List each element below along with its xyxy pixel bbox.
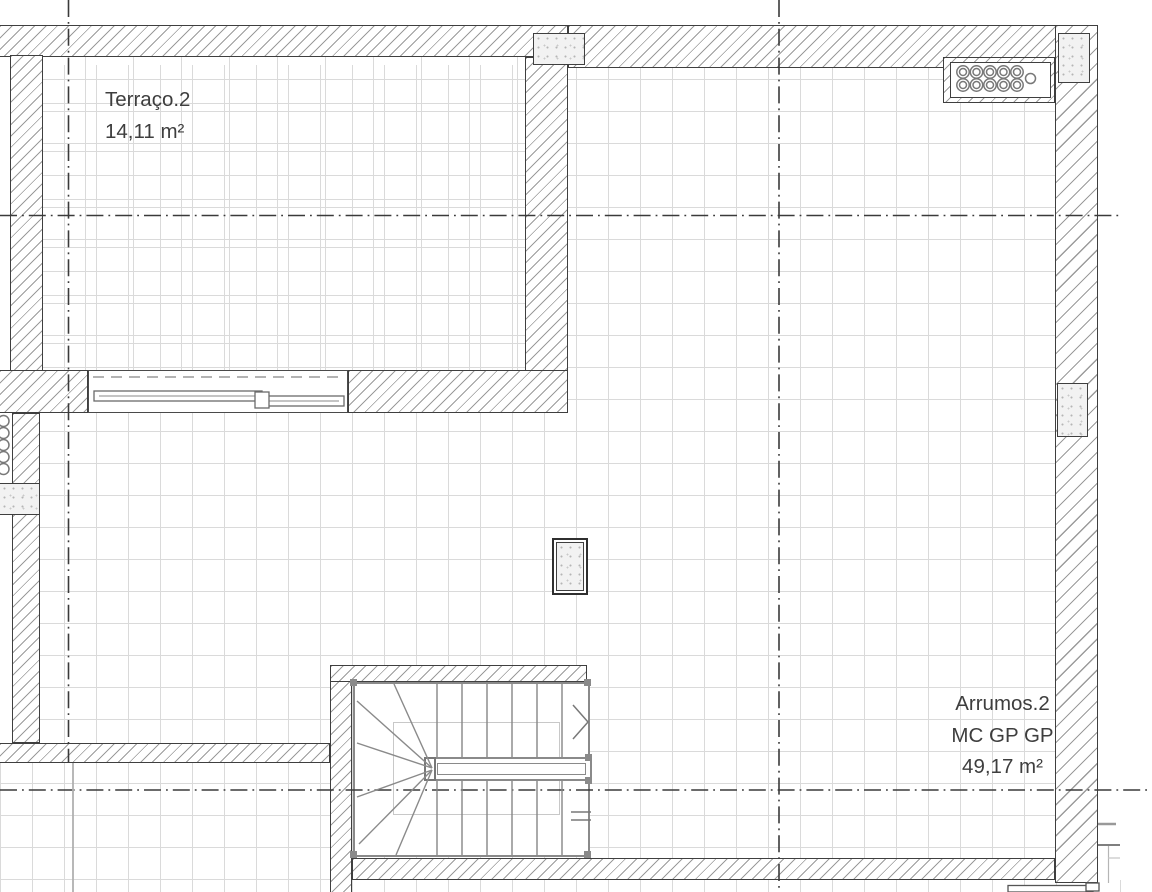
railing-post — [585, 777, 592, 784]
coil-symbol — [0, 416, 9, 475]
arrumos-area: 49,17 m² — [935, 751, 1070, 783]
stair-wall-top — [330, 665, 587, 682]
terrace-left-wall — [10, 55, 43, 413]
column-stipple-top-center — [533, 33, 585, 65]
room-label-terrace: Terraço.2 14,11 m² — [105, 84, 190, 148]
window-sliding — [88, 370, 348, 413]
floor-bottom-strip — [330, 880, 1152, 892]
arrumos-name: Arrumos.2 — [935, 688, 1070, 720]
column-freestanding-core — [556, 542, 584, 591]
railing-post — [585, 754, 592, 761]
column-stipple-top-right — [1058, 33, 1090, 83]
stair-wall-left — [330, 665, 352, 892]
floor-lower-left — [0, 763, 330, 892]
column-stipple-right-mid — [1057, 383, 1088, 437]
railing-post — [584, 679, 591, 686]
room-label-arrumos: Arrumos.2 MC GP GP 49,17 m² — [935, 688, 1070, 783]
terrace-bottom-wall-right — [348, 370, 568, 413]
railing-post — [350, 851, 357, 858]
vent-grille — [950, 62, 1051, 98]
terrace-bottom-wall-left — [0, 370, 88, 413]
wall-bottom-left — [0, 743, 330, 763]
column-freestanding — [552, 538, 588, 595]
floor-plan-canvas: Terraço.2 14,11 m² Arrumos.2 MC GP GP 49… — [0, 0, 1152, 892]
slab-stipple-left — [0, 483, 40, 515]
railing-post — [350, 679, 357, 686]
terrace-name: Terraço.2 — [105, 84, 190, 116]
exterior-railing-lines — [1098, 824, 1120, 883]
arrumos-codes: MC GP GP — [935, 720, 1070, 752]
wall-bottom-right — [352, 858, 1055, 880]
terrace-area: 14,11 m² — [105, 116, 190, 148]
wall-left-lower — [12, 413, 40, 743]
terrace-right-wall — [525, 57, 568, 413]
stair-central-rail-inner — [437, 763, 586, 775]
stair-rail-hub — [424, 757, 436, 781]
railing-post — [584, 851, 591, 858]
wall-top-left — [0, 25, 568, 57]
